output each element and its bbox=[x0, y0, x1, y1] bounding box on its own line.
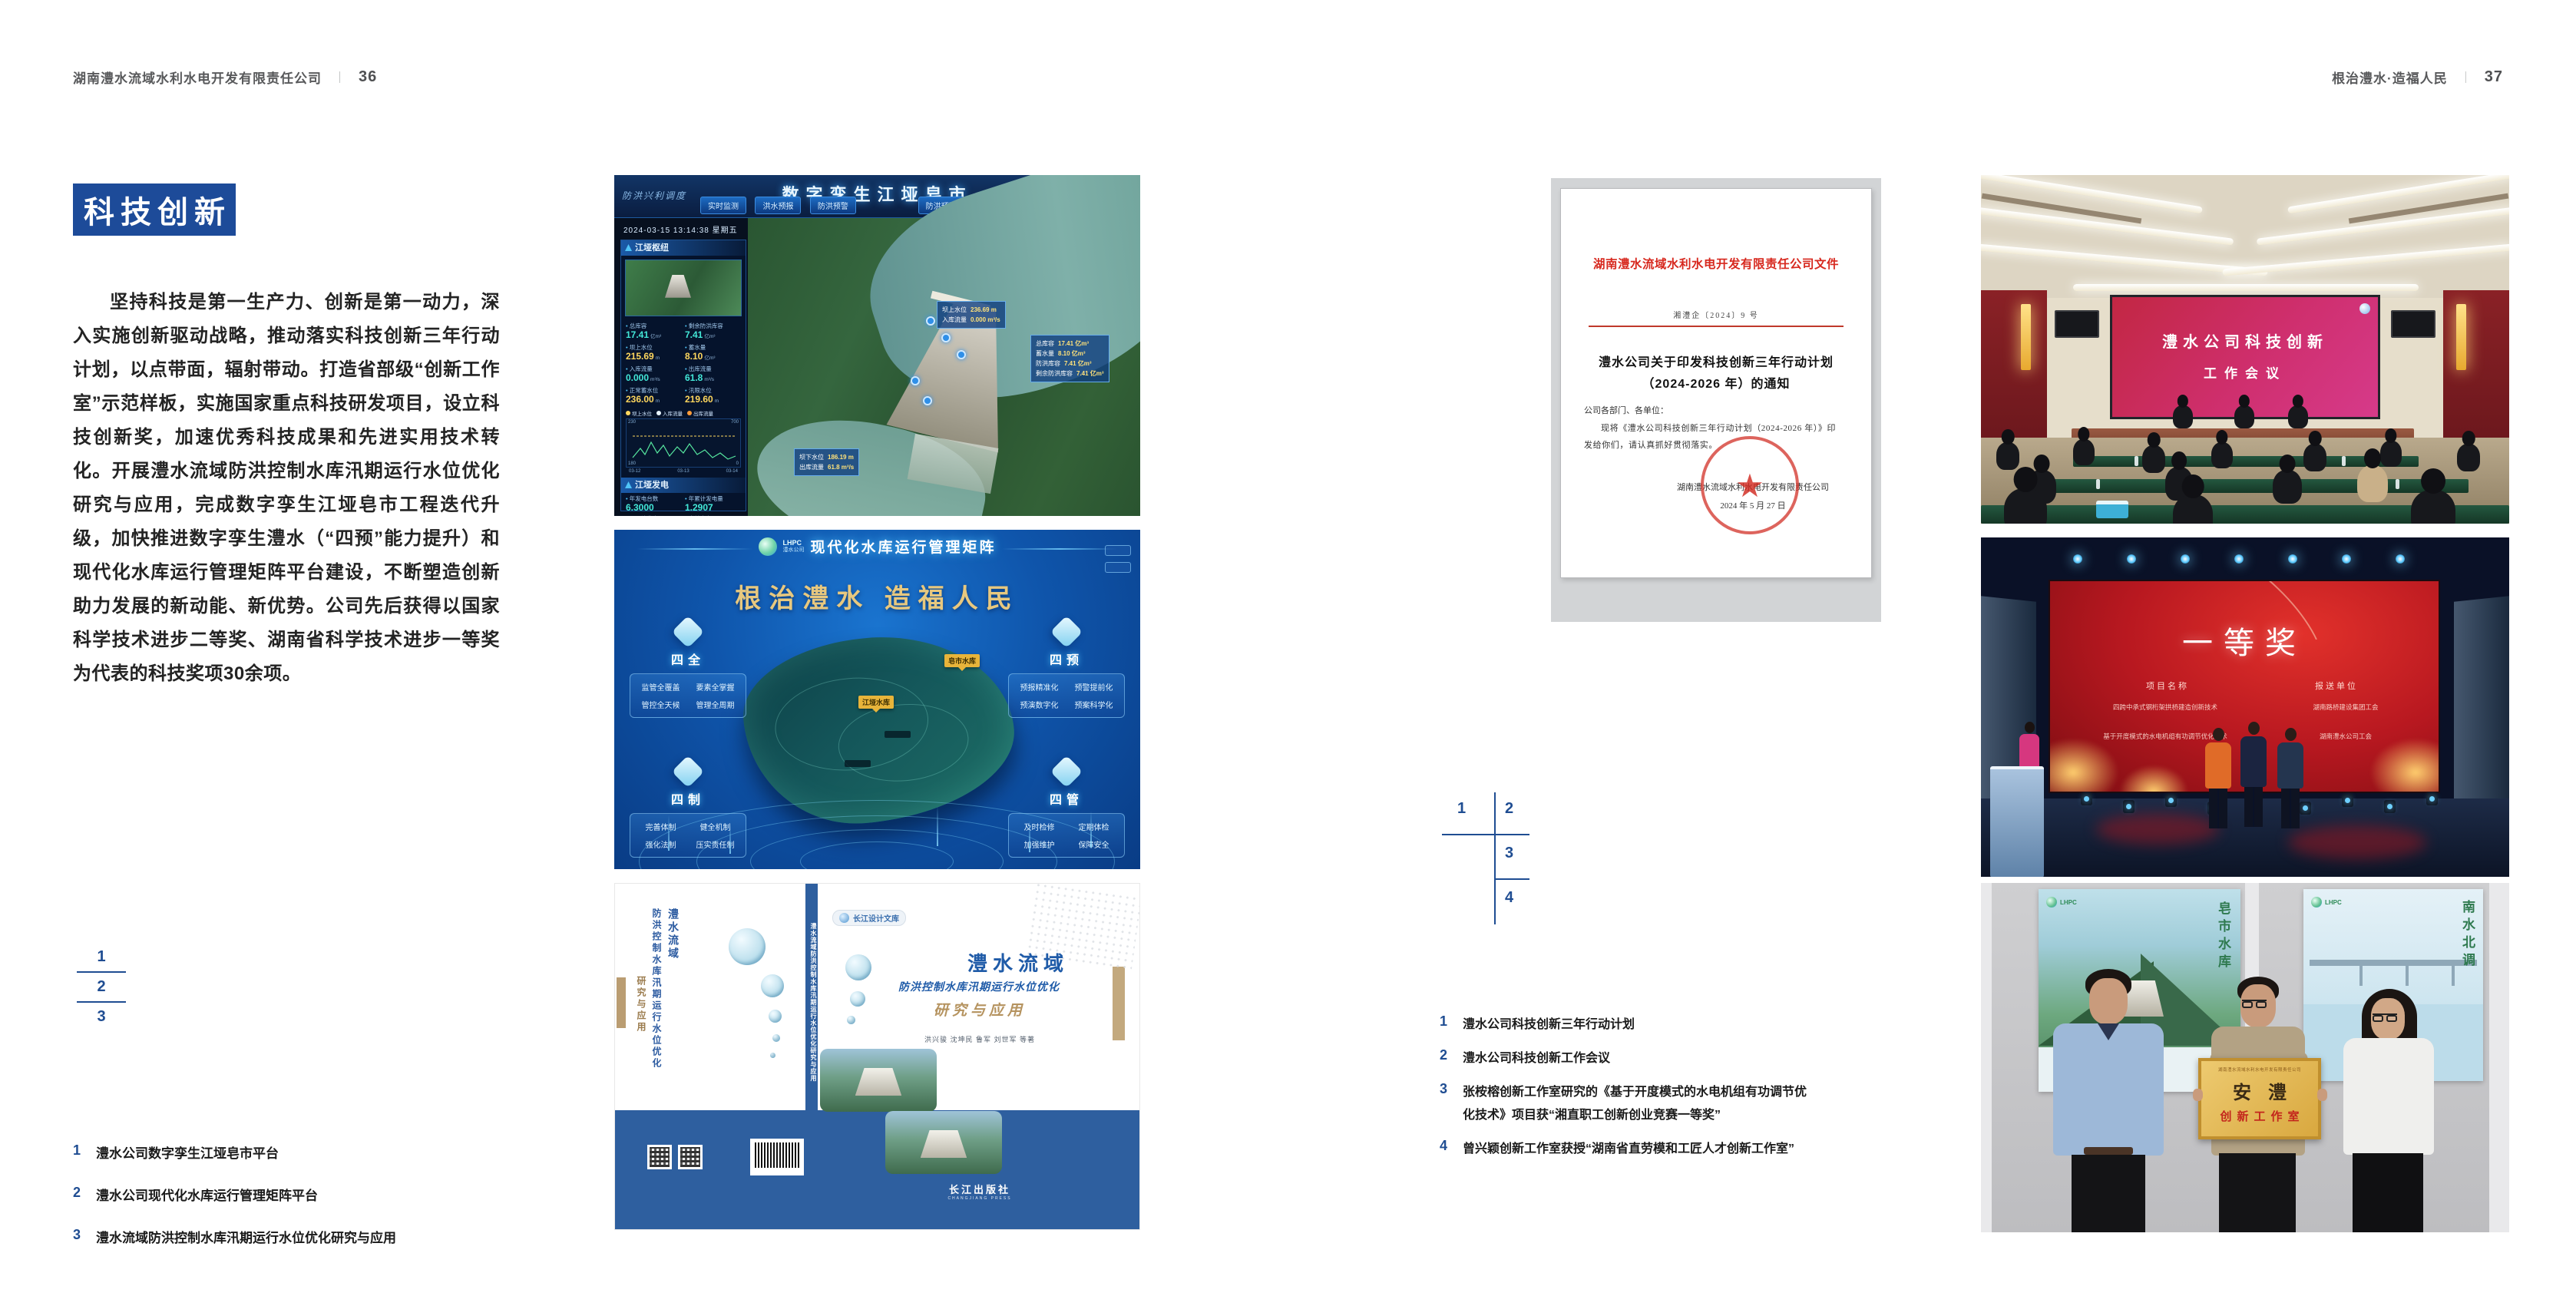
chart-x-labels: 03-12 03-13 03-14 bbox=[629, 469, 738, 474]
rostrum-person bbox=[2234, 405, 2254, 428]
person-hand bbox=[2317, 1089, 2327, 1101]
logo-text: LHPC bbox=[782, 539, 804, 547]
platform-title: 现代化水库运行管理矩阵 bbox=[810, 536, 996, 557]
section-title-badge: 科技创新 bbox=[73, 184, 236, 236]
column-header-project: 项目名称 bbox=[2146, 679, 2189, 692]
map-label-zaoshi[interactable]: 皂市水库 bbox=[944, 654, 980, 667]
caption-text: 澧水公司科技创新三年行动计划 bbox=[1463, 1013, 1635, 1037]
bridge-shape bbox=[2310, 960, 2477, 966]
body-paragraph: 坚持科技是第一生产力、创新是第一动力，深入实施创新驱动战略，推动落实科技创新三年… bbox=[73, 286, 500, 691]
header-wing bbox=[1002, 548, 1117, 550]
official-seal: ★ bbox=[1701, 436, 1799, 534]
water-bottle bbox=[2135, 456, 2138, 466]
audience-silhouette bbox=[1996, 442, 2019, 470]
document-red-rule bbox=[1589, 326, 1844, 327]
water-bottle bbox=[2342, 456, 2346, 466]
side-wall-right bbox=[2443, 290, 2509, 438]
wall-tv bbox=[2055, 310, 2099, 338]
award-winner-navy bbox=[2277, 728, 2303, 828]
back-tan-block bbox=[617, 977, 626, 1028]
figure-index-2: 2 bbox=[77, 973, 126, 1001]
header-divider: ｜ bbox=[2460, 69, 2472, 85]
company-name: 湖南澧水流域水利水电开发有限责任公司 bbox=[73, 68, 322, 87]
gate-marker[interactable] bbox=[957, 350, 966, 359]
water-bottle bbox=[2396, 479, 2399, 489]
tab-realtime-monitor[interactable]: 实时监测 bbox=[700, 197, 746, 214]
gate-marker[interactable] bbox=[923, 396, 932, 405]
audience-silhouette bbox=[2004, 488, 2047, 524]
document-salutation: 公司各部门、各单位： bbox=[1584, 404, 1668, 416]
hub-stat-grid: 总库容17.41亿m³ 剩余防洪库容7.41亿m³ 坝上水位215.69m 蓄水… bbox=[621, 320, 746, 408]
callout-value: 7.41 亿m³ bbox=[1064, 359, 1092, 369]
caption-item: 1 澧水公司科技创新三年行动计划 bbox=[1440, 1013, 1977, 1037]
barcode bbox=[750, 1139, 804, 1175]
figure-meeting-photo: 澧水公司科技创新 工作会议 bbox=[1981, 175, 2509, 524]
close-button[interactable] bbox=[1105, 545, 1131, 556]
gate-marker[interactable] bbox=[926, 316, 935, 326]
poster-right-calligraphy: 南水北调 bbox=[2458, 900, 2477, 1015]
wall-lamp bbox=[2021, 304, 2031, 370]
maintenance-icon bbox=[1050, 755, 1083, 788]
audience-silhouette bbox=[2211, 442, 2233, 468]
golden-glow bbox=[2369, 738, 2440, 793]
light-pillar bbox=[668, 815, 670, 851]
dashboard-corner-label: 防洪兴利调度 bbox=[622, 189, 686, 202]
person-shirt-white-tee bbox=[2343, 1038, 2434, 1155]
stat-cell: 当前出力0.00 bbox=[685, 514, 741, 516]
callout-label: 坝上水位 bbox=[942, 305, 967, 315]
caption-list-right: 1 澧水公司科技创新三年行动计划 2 澧水公司科技创新工作会议 3 张桉榕创新工… bbox=[1440, 1013, 1977, 1180]
figure-digital-twin-platform: 防洪兴利调度 数字孪生江垭皂市 实时监测 洪水预报 防洪预警 防洪预演 预案生成… bbox=[614, 175, 1140, 516]
stat-cell: 汛限水位219.60m bbox=[685, 386, 741, 406]
innovation-studio-plaque: 湖南澧水流域水利水电开发有限责任公司 安澧 创新工作室 bbox=[2198, 1058, 2321, 1139]
side-wall-left bbox=[1981, 290, 2047, 438]
figure-index-3: 3 bbox=[77, 1003, 126, 1031]
dam-3d-scene: 坝上水位236.69 m 入库流量0.000 m³/s 总库容17.41 亿m³… bbox=[748, 218, 1140, 516]
figure-index-left: 1 2 3 bbox=[77, 943, 126, 1031]
dashboard-tabs-left: 实时监测 洪水预报 防洪预警 bbox=[700, 197, 861, 214]
caption-text: 曾兴颖创新工作室获授“湖南省直劳模和工匠人才创新工作室” bbox=[1463, 1138, 1794, 1161]
map-label-jiangya[interactable]: 江垭水库 bbox=[858, 696, 894, 709]
series-name: 长江设计文库 bbox=[853, 912, 899, 924]
caption-item: 2 澧水公司科技创新工作会议 bbox=[1440, 1047, 1977, 1070]
stat-cell: 坝上水位215.69m bbox=[626, 343, 682, 363]
callout-label: 总库容 bbox=[1036, 339, 1054, 349]
callout-label: 防洪库容 bbox=[1036, 359, 1060, 369]
caption-text: 张桉榕创新工作室研究的《基于开度模式的水电机组有功调节优化技术》项目获“湘直职工… bbox=[1463, 1081, 1816, 1127]
document-title-line2: （2024-2026 年）的通知 bbox=[1561, 373, 1871, 392]
lhpc-logo-icon bbox=[2046, 897, 2057, 908]
document-body-line2: 发给你们，请认真抓好贯彻落实。 bbox=[1584, 438, 1718, 451]
callout-value: 8.10 亿m³ bbox=[1058, 349, 1086, 359]
caption-number: 2 bbox=[73, 1185, 96, 1201]
stage-light bbox=[2234, 554, 2244, 564]
caption-item: 3 澧水流域防洪控制水库汛期运行水位优化研究与应用 bbox=[73, 1227, 549, 1250]
figure-award-photo: 一等奖 项目名称 报送单位 四跨中承式钢桁架拱桥建造创新技术 湖南路桥建设集团工… bbox=[1981, 537, 2509, 877]
person-hand bbox=[2193, 1089, 2203, 1101]
back-cover-title-1: 澧水流域 bbox=[666, 908, 681, 1039]
poster-logo: LHPC bbox=[2046, 897, 2077, 908]
qr-code bbox=[647, 1145, 672, 1169]
audience-silhouette bbox=[2142, 445, 2165, 473]
org-name: 湖南路桥建设集团工会 bbox=[2280, 703, 2411, 712]
plaque-header: 湖南澧水流域水利水电开发有限责任公司 bbox=[2201, 1066, 2318, 1073]
stage-light bbox=[2073, 554, 2082, 564]
callout-value: 61.8 m³/s bbox=[828, 462, 854, 472]
plaque-title: 安澧 bbox=[2201, 1077, 2318, 1104]
document-body-line1: 现将《澧水公司科技创新三年行动计划（2024-2026 年）》印 bbox=[1601, 422, 1836, 434]
screen-title-line1: 澧水公司科技创新 bbox=[2112, 329, 2378, 352]
column-header-org: 报送单位 bbox=[2315, 679, 2358, 692]
spine-title: 澧水流域防洪控制水库汛期运行水位优化研究与应用 bbox=[805, 894, 818, 1109]
dam-photo-band bbox=[885, 1111, 1002, 1174]
generation-stat-grid: 年发电台数6.3000 年累计发电量1.2907 月累计发电量3359.21 当… bbox=[621, 493, 746, 516]
chart-canvas bbox=[627, 419, 742, 467]
moving-head-light bbox=[2384, 800, 2396, 813]
dashboard-datetime: 2024-03-15 13:14:38 星期五 bbox=[623, 223, 738, 235]
stat-cell: 入库流量0.000m³/s bbox=[626, 365, 682, 385]
award-headline: 一等奖 bbox=[2050, 618, 2439, 663]
index-grid-vline bbox=[1494, 792, 1496, 924]
caption-number: 3 bbox=[1440, 1081, 1463, 1097]
moving-head-light bbox=[2123, 800, 2135, 813]
map-station-chip bbox=[845, 760, 871, 767]
caption-number: 2 bbox=[1440, 1047, 1463, 1063]
group-panel-siyu: 四预 预报精准化 预警提前化 预演数字化 预案科学化 bbox=[1008, 620, 1125, 718]
index-grid-hline bbox=[1442, 834, 1529, 835]
book-subtitle-2: 研究与应用 bbox=[868, 999, 1091, 1020]
map-station-chip bbox=[885, 731, 911, 738]
caption-text: 澧水流域防洪控制水库汛期运行水位优化研究与应用 bbox=[96, 1227, 396, 1250]
water-bubble bbox=[770, 1053, 775, 1058]
logo-subtext: 澧水公司 bbox=[782, 547, 804, 554]
floor-reflection bbox=[2288, 825, 2426, 859]
back-cover-title-2: 防洪控制水库汛期运行水位优化 bbox=[650, 908, 663, 1077]
callout-value: 236.69 m bbox=[971, 305, 997, 315]
book-subtitle: 防洪控制水库汛期运行水位优化 bbox=[828, 979, 1129, 994]
glasses-icon bbox=[2242, 1000, 2267, 1007]
stat-cell: 年发电台数6.3000 bbox=[626, 494, 682, 513]
callout-value: 186.19 m bbox=[828, 452, 854, 462]
stat-cell: 剩余防洪库容7.41亿m³ bbox=[685, 322, 741, 342]
caption-number: 1 bbox=[1440, 1013, 1463, 1030]
person-pants bbox=[2219, 1153, 2296, 1232]
moving-head-light bbox=[2426, 792, 2438, 805]
golden-glow bbox=[2049, 738, 2119, 793]
water-bubble bbox=[772, 1034, 780, 1042]
water-bubble bbox=[761, 974, 784, 997]
stat-cell: 总库容17.41亿m³ bbox=[626, 322, 682, 342]
callout-label: 蓄水量 bbox=[1036, 349, 1054, 359]
figure-group-photo: LHPC 皂市水库 LHPC 南水北调 湖南澧水流域水利水电开发有限责任公司 安… bbox=[1981, 883, 2509, 1232]
light-pillar bbox=[1090, 811, 1092, 848]
document-title-line1: 澧水公司关于印发科技创新三年行动计划 bbox=[1561, 352, 1871, 370]
callout-capacity: 总库容17.41 亿m³ 蓄水量8.10 亿m³ 防洪库容7.41 亿m³ 剩余… bbox=[1030, 335, 1109, 382]
figure-index-1: 1 bbox=[1457, 800, 1466, 818]
figure-official-document: 湖南澧水流域水利水电开发有限责任公司文件 湘澧企〔2024〕9 号 澧水公司关于… bbox=[1551, 178, 1881, 622]
stage-light bbox=[2127, 554, 2136, 564]
person-pants bbox=[2072, 1155, 2145, 1232]
stat-cell: 蓄水量8.10亿m³ bbox=[685, 343, 741, 363]
callout-value: 0.000 m³/s bbox=[971, 315, 1000, 325]
changjiang-design-icon bbox=[839, 913, 849, 923]
lhpc-logo-icon bbox=[2311, 897, 2322, 908]
stat-cell: 正常蓄水位236.00m bbox=[626, 386, 682, 406]
caption-list-left: 1 澧水公司数字孪生江垭皂市平台 2 澧水公司现代化水库运行管理矩阵平台 3 澧… bbox=[73, 1142, 549, 1269]
light-pillar bbox=[1029, 820, 1030, 852]
cover-blue-band bbox=[615, 1110, 1139, 1229]
book-title: 澧水流域 bbox=[907, 948, 1129, 977]
moving-head-light bbox=[2342, 794, 2353, 807]
audience-silhouette bbox=[2073, 439, 2095, 465]
light-pillar bbox=[729, 825, 731, 854]
callout-value: 7.41 亿m³ bbox=[1076, 369, 1104, 379]
audience-silhouette bbox=[2303, 444, 2326, 471]
callout-label: 出库流量 bbox=[799, 462, 824, 472]
left-stat-panel: 江垭枢纽 总库容17.41亿m³ 剩余防洪库容7.41亿m³ 坝上水位215.6… bbox=[620, 240, 746, 511]
water-bubble bbox=[845, 954, 871, 980]
figure-index-3: 3 bbox=[1505, 845, 1513, 862]
tissue-box bbox=[2096, 501, 2128, 518]
moving-head-light bbox=[2081, 792, 2092, 805]
header-divider: ｜ bbox=[334, 69, 346, 85]
index-grid-hline bbox=[1494, 878, 1529, 880]
audience-silhouette bbox=[2380, 441, 2402, 467]
figure-book-cover: 澧水流域 防洪控制水库汛期运行水位优化 研究与应用 澧水流域防洪控制水库汛期运行… bbox=[614, 883, 1140, 1230]
audience-silhouette bbox=[2273, 470, 2302, 504]
series-logo-chip: 长江设计文库 bbox=[832, 910, 906, 926]
dam-photo-front bbox=[820, 1049, 937, 1112]
publisher-block: 长江出版社 CHANGJIANG PRESS bbox=[868, 1182, 1091, 1201]
stage-light bbox=[2396, 554, 2405, 564]
tab-flood-forecast[interactable]: 洪水预报 bbox=[755, 197, 801, 214]
callout-downstream: 坝下水位186.19 m 出库流量61.8 m³/s bbox=[794, 448, 859, 476]
platform-header: LHPC 澧水公司 现代化水库运行管理矩阵 bbox=[758, 536, 996, 557]
wall-frame bbox=[1981, 883, 1992, 1232]
stat-cell: 年累计发电量1.2907 bbox=[685, 494, 741, 513]
right-page-header: 根治澧水·造福人民 ｜ 37 bbox=[2332, 68, 2503, 87]
figure-index-4: 4 bbox=[1505, 889, 1513, 907]
slogan-text: 根治澧水·造福人民 bbox=[2332, 68, 2448, 87]
project-name: 四跨中承式钢桁架拱桥建造创新技术 bbox=[2092, 703, 2238, 712]
caption-number: 1 bbox=[73, 1142, 96, 1159]
wall-tv bbox=[2391, 310, 2435, 338]
qr-code bbox=[678, 1145, 703, 1169]
publisher-name: 长江出版社 bbox=[868, 1182, 1091, 1196]
moving-head-light bbox=[2165, 794, 2177, 807]
left-page-header: 湖南澧水流域水利水电开发有限责任公司 ｜ 36 bbox=[73, 68, 377, 87]
front-tan-block bbox=[1113, 967, 1125, 1040]
figure-index-1: 1 bbox=[77, 943, 126, 971]
glasses-icon bbox=[2373, 1013, 2397, 1020]
header-wing bbox=[637, 548, 752, 550]
audience-silhouette bbox=[2357, 465, 2388, 502]
gate-marker[interactable] bbox=[911, 376, 920, 385]
seal-star-icon: ★ bbox=[1735, 467, 1764, 504]
document-sheet: 湖南澧水流域水利水电开发有限责任公司文件 湘澧企〔2024〕9 号 澧水公司关于… bbox=[1560, 188, 1872, 578]
building-icon bbox=[672, 755, 704, 788]
poster-left-calligraphy: 皂市水库 bbox=[2214, 901, 2233, 1017]
caption-item: 1 澧水公司数字孪生江垭皂市平台 bbox=[73, 1142, 549, 1165]
rostrum-person bbox=[2288, 405, 2308, 428]
publisher-name-en: CHANGJIANG PRESS bbox=[868, 1196, 1091, 1201]
chart-legend: 坝上水位 入库流量 出库流量 bbox=[621, 408, 746, 417]
stat-cell: 出库流量61.8m³/s bbox=[685, 365, 741, 385]
stage-light bbox=[2181, 554, 2190, 564]
slogan-calligraphy: 根治澧水 造福人民 bbox=[735, 577, 1020, 615]
caption-item: 2 澧水公司现代化水库运行管理矩阵平台 bbox=[73, 1185, 549, 1208]
monitor-icon bbox=[672, 616, 704, 648]
audience-silhouette bbox=[2411, 490, 2455, 524]
rostrum-person bbox=[2173, 405, 2193, 428]
screen-title-line2: 工作会议 bbox=[2112, 362, 2378, 382]
stage-light bbox=[2342, 554, 2351, 564]
wall-lamp bbox=[2456, 304, 2466, 370]
tab-flood-warning[interactable]: 防洪预警 bbox=[810, 197, 856, 214]
forecast-icon bbox=[1050, 616, 1083, 648]
callout-label: 剩余防洪库容 bbox=[1036, 369, 1073, 379]
host-podium bbox=[1990, 766, 2044, 877]
award-winner-orange bbox=[2205, 728, 2231, 828]
water-bottle bbox=[2096, 479, 2100, 489]
water-level-chart: 230 180 700 0 bbox=[626, 418, 741, 468]
belt bbox=[2084, 1147, 2133, 1155]
caption-number: 4 bbox=[1440, 1138, 1463, 1154]
group-panel-siquan: 四全 监管全覆盖 要素全掌握 管控全天候 管理全周期 bbox=[630, 620, 746, 718]
stage-light bbox=[2288, 554, 2297, 564]
figure-matrix-platform: LHPC 澧水公司 现代化水库运行管理矩阵 根治澧水 造福人民 皂市水库 江垭水… bbox=[614, 530, 1140, 869]
caption-text: 澧水公司数字孪生江垭皂市平台 bbox=[96, 1142, 279, 1165]
wall-frame bbox=[2489, 883, 2509, 1232]
audience-silhouette bbox=[2173, 494, 2213, 524]
menu-button[interactable] bbox=[1105, 562, 1131, 573]
floor-reflection bbox=[2096, 814, 2219, 845]
caption-item: 4 曾兴颖创新工作室获授“湖南省直劳模和工匠人才创新工作室” bbox=[1440, 1138, 1977, 1161]
ceiling-light bbox=[2073, 284, 2419, 291]
book-authors: 洪兴骏 沈坤民 鲁军 刘世军 等著 bbox=[845, 1034, 1114, 1044]
callout-label: 坝下水位 bbox=[799, 452, 824, 462]
water-bubble bbox=[769, 1010, 782, 1023]
gate-marker[interactable] bbox=[941, 333, 951, 342]
callout-label: 入库流量 bbox=[942, 315, 967, 325]
light-pillar bbox=[937, 806, 938, 846]
presenter-suit bbox=[2240, 722, 2267, 827]
screen-logo-icon bbox=[2359, 303, 2370, 314]
ceiling bbox=[1981, 175, 2509, 298]
caption-text: 澧水公司现代化水库运行管理矩阵平台 bbox=[96, 1185, 318, 1208]
panel-title-hub: 江垭枢纽 bbox=[621, 240, 746, 256]
poster-logo: LHPC bbox=[2311, 897, 2342, 908]
audience-silhouette bbox=[2457, 444, 2480, 471]
lhpc-logo-icon bbox=[758, 537, 776, 556]
document-red-header: 湖南澧水流域水利水电开发有限责任公司文件 bbox=[1561, 255, 1871, 272]
stat-cell: 月累计发电量3359.21 bbox=[626, 514, 682, 516]
golden-glow bbox=[2119, 765, 2188, 793]
person-shirt-blue-polo bbox=[2053, 1023, 2164, 1156]
document-number: 湘澧企〔2024〕9 号 bbox=[1561, 309, 1871, 320]
plaque-subtitle: 创新工作室 bbox=[2201, 1108, 2318, 1124]
figure-index-2: 2 bbox=[1505, 800, 1513, 818]
page-number-left: 36 bbox=[359, 68, 377, 86]
back-cover-title-3: 研究与应用 bbox=[635, 976, 648, 1068]
water-bubble bbox=[847, 1016, 855, 1024]
person-pants bbox=[2353, 1153, 2423, 1232]
caption-text: 澧水公司科技创新工作会议 bbox=[1463, 1047, 1610, 1070]
person-face bbox=[2089, 978, 2128, 1024]
callout-upstream: 坝上水位236.69 m 入库流量0.000 m³/s bbox=[937, 301, 1006, 329]
caption-item: 3 张桉榕创新工作室研究的《基于开度模式的水电机组有功调节优化技术》项目获“湘直… bbox=[1440, 1081, 1977, 1127]
panel-title-generation: 江垭发电 bbox=[621, 478, 746, 493]
caption-number: 3 bbox=[73, 1227, 96, 1243]
table-row bbox=[2023, 479, 2469, 493]
page-number-right: 37 bbox=[2485, 68, 2503, 86]
water-bubble bbox=[729, 928, 766, 965]
dam-thumbnail[interactable] bbox=[625, 260, 742, 316]
callout-value: 17.41 亿m³ bbox=[1058, 339, 1089, 349]
host-figure bbox=[2018, 722, 2041, 771]
